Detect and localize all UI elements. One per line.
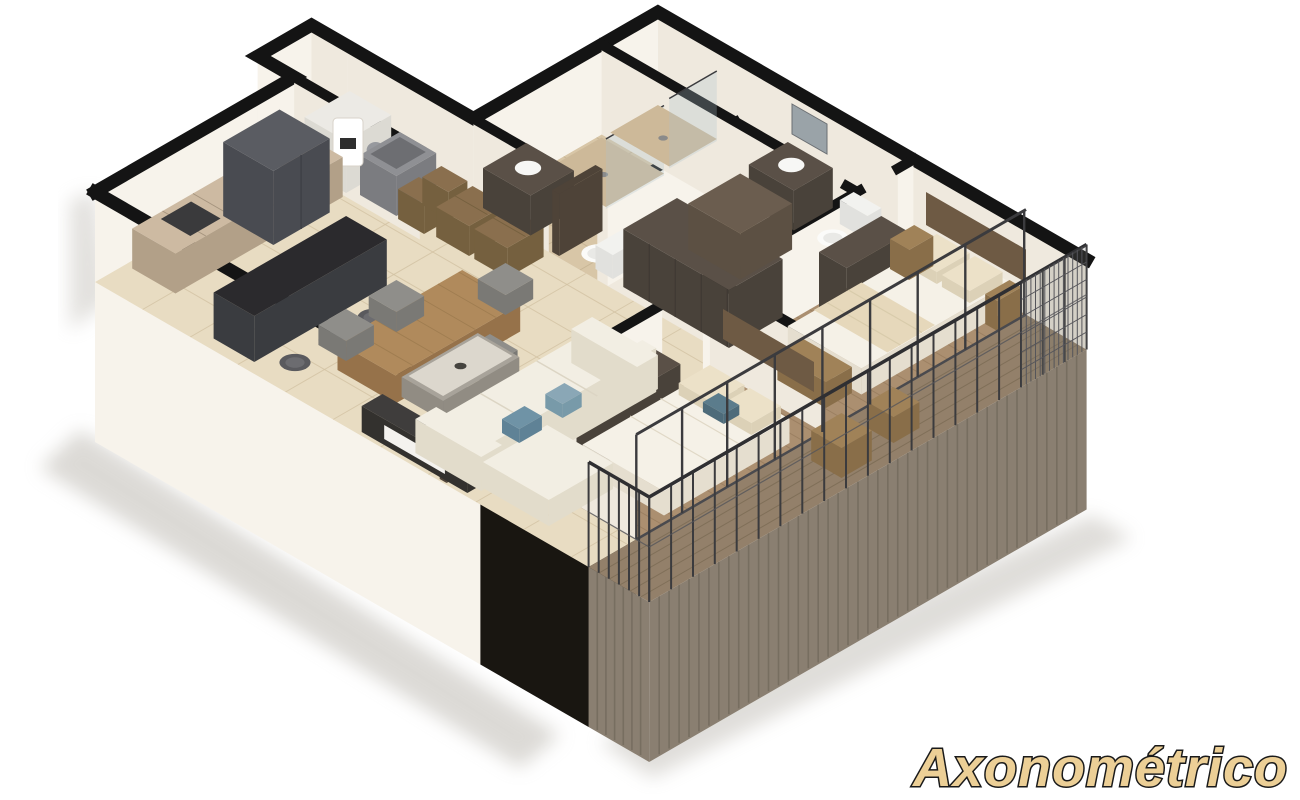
render-art	[40, 12, 1132, 778]
caption-text: Axonométrico	[911, 738, 1288, 798]
axonometric-apartment-svg: Axonométrico	[0, 0, 1300, 800]
floorplan-render: Axonométrico	[0, 0, 1300, 800]
